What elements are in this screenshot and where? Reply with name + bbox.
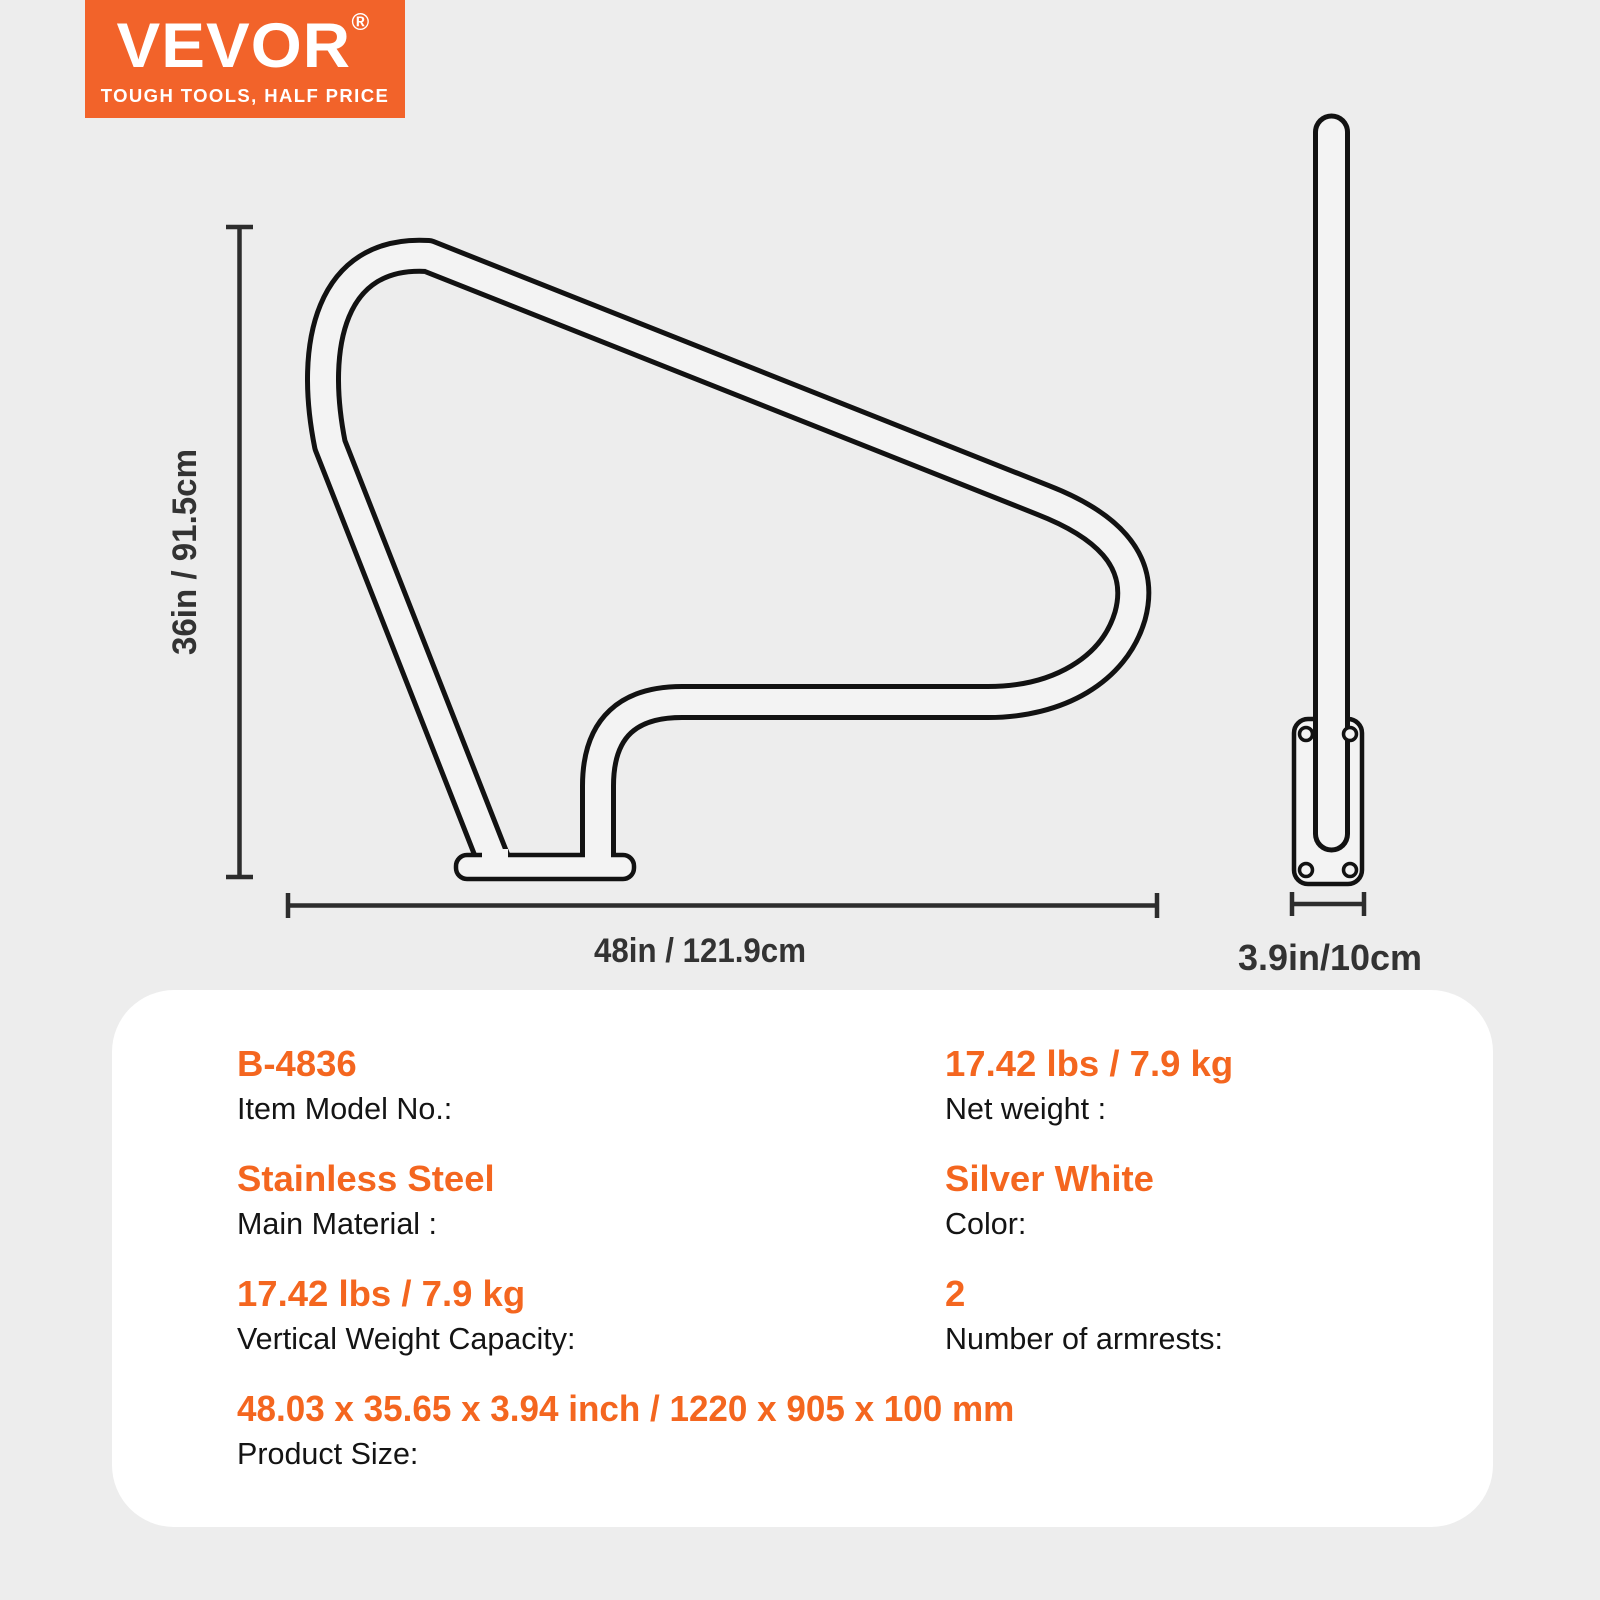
spec-value: Stainless Steel bbox=[237, 1157, 945, 1201]
spec-item-model: B-4836 Item Model No.: bbox=[237, 1042, 945, 1129]
width-dimension bbox=[288, 893, 1157, 918]
spec-weight-capacity: 17.42 lbs / 7.9 kg Vertical Weight Capac… bbox=[237, 1272, 945, 1359]
spec-value: 2 bbox=[945, 1272, 1493, 1316]
depth-dimension-label: 3.9in/10cm bbox=[1238, 937, 1422, 978]
screw-hole bbox=[1344, 864, 1357, 877]
spec-label: Number of armrests: bbox=[945, 1319, 1493, 1359]
rail-tube-fill bbox=[323, 256, 1133, 862]
spec-label: Net weight : bbox=[945, 1089, 1493, 1129]
screw-hole bbox=[1300, 864, 1313, 877]
spec-label: Main Material : bbox=[237, 1204, 945, 1244]
leg-plate-joint bbox=[482, 849, 508, 863]
spec-product-size: 48.03 x 35.65 x 3.94 inch / 1220 x 905 x… bbox=[237, 1387, 1493, 1474]
width-dimension-label: 48in / 121.9cm bbox=[594, 932, 806, 970]
spec-net-weight: 17.42 lbs / 7.9 kg Net weight : bbox=[945, 1042, 1493, 1129]
spec-armrest-count: 2 Number of armrests: bbox=[945, 1272, 1493, 1359]
depth-dimension bbox=[1292, 892, 1364, 916]
spec-value: Silver White bbox=[945, 1157, 1493, 1201]
height-dimension bbox=[226, 227, 253, 877]
spec-main-material: Stainless Steel Main Material : bbox=[237, 1157, 945, 1244]
specifications-grid: B-4836 Item Model No.: 17.42 lbs / 7.9 k… bbox=[237, 1042, 1493, 1502]
spec-label: Product Size: bbox=[237, 1434, 1493, 1474]
product-spec-infographic: VEVOR ® TOUGH TOOLS, HALF PRICE bbox=[0, 0, 1600, 1600]
handrail-end-view bbox=[1294, 132, 1362, 884]
height-dimension-label: 36in / 91.5cm bbox=[166, 449, 204, 655]
spec-label: Color: bbox=[945, 1204, 1493, 1244]
screw-hole bbox=[1344, 728, 1357, 741]
specifications-card: B-4836 Item Model No.: 17.42 lbs / 7.9 k… bbox=[112, 990, 1493, 1527]
spec-value: 17.42 lbs / 7.9 kg bbox=[237, 1272, 945, 1316]
leg-plate-joint bbox=[585, 849, 611, 863]
spec-label: Item Model No.: bbox=[237, 1089, 945, 1129]
spec-value: 17.42 lbs / 7.9 kg bbox=[945, 1042, 1493, 1086]
spec-value: 48.03 x 35.65 x 3.94 inch / 1220 x 905 x… bbox=[237, 1387, 1014, 1431]
handrail-profile-view bbox=[323, 256, 1133, 879]
spec-value: B-4836 bbox=[237, 1042, 945, 1086]
spec-label: Vertical Weight Capacity: bbox=[237, 1319, 945, 1359]
spec-color: Silver White Color: bbox=[945, 1157, 1493, 1244]
screw-hole bbox=[1300, 728, 1313, 741]
